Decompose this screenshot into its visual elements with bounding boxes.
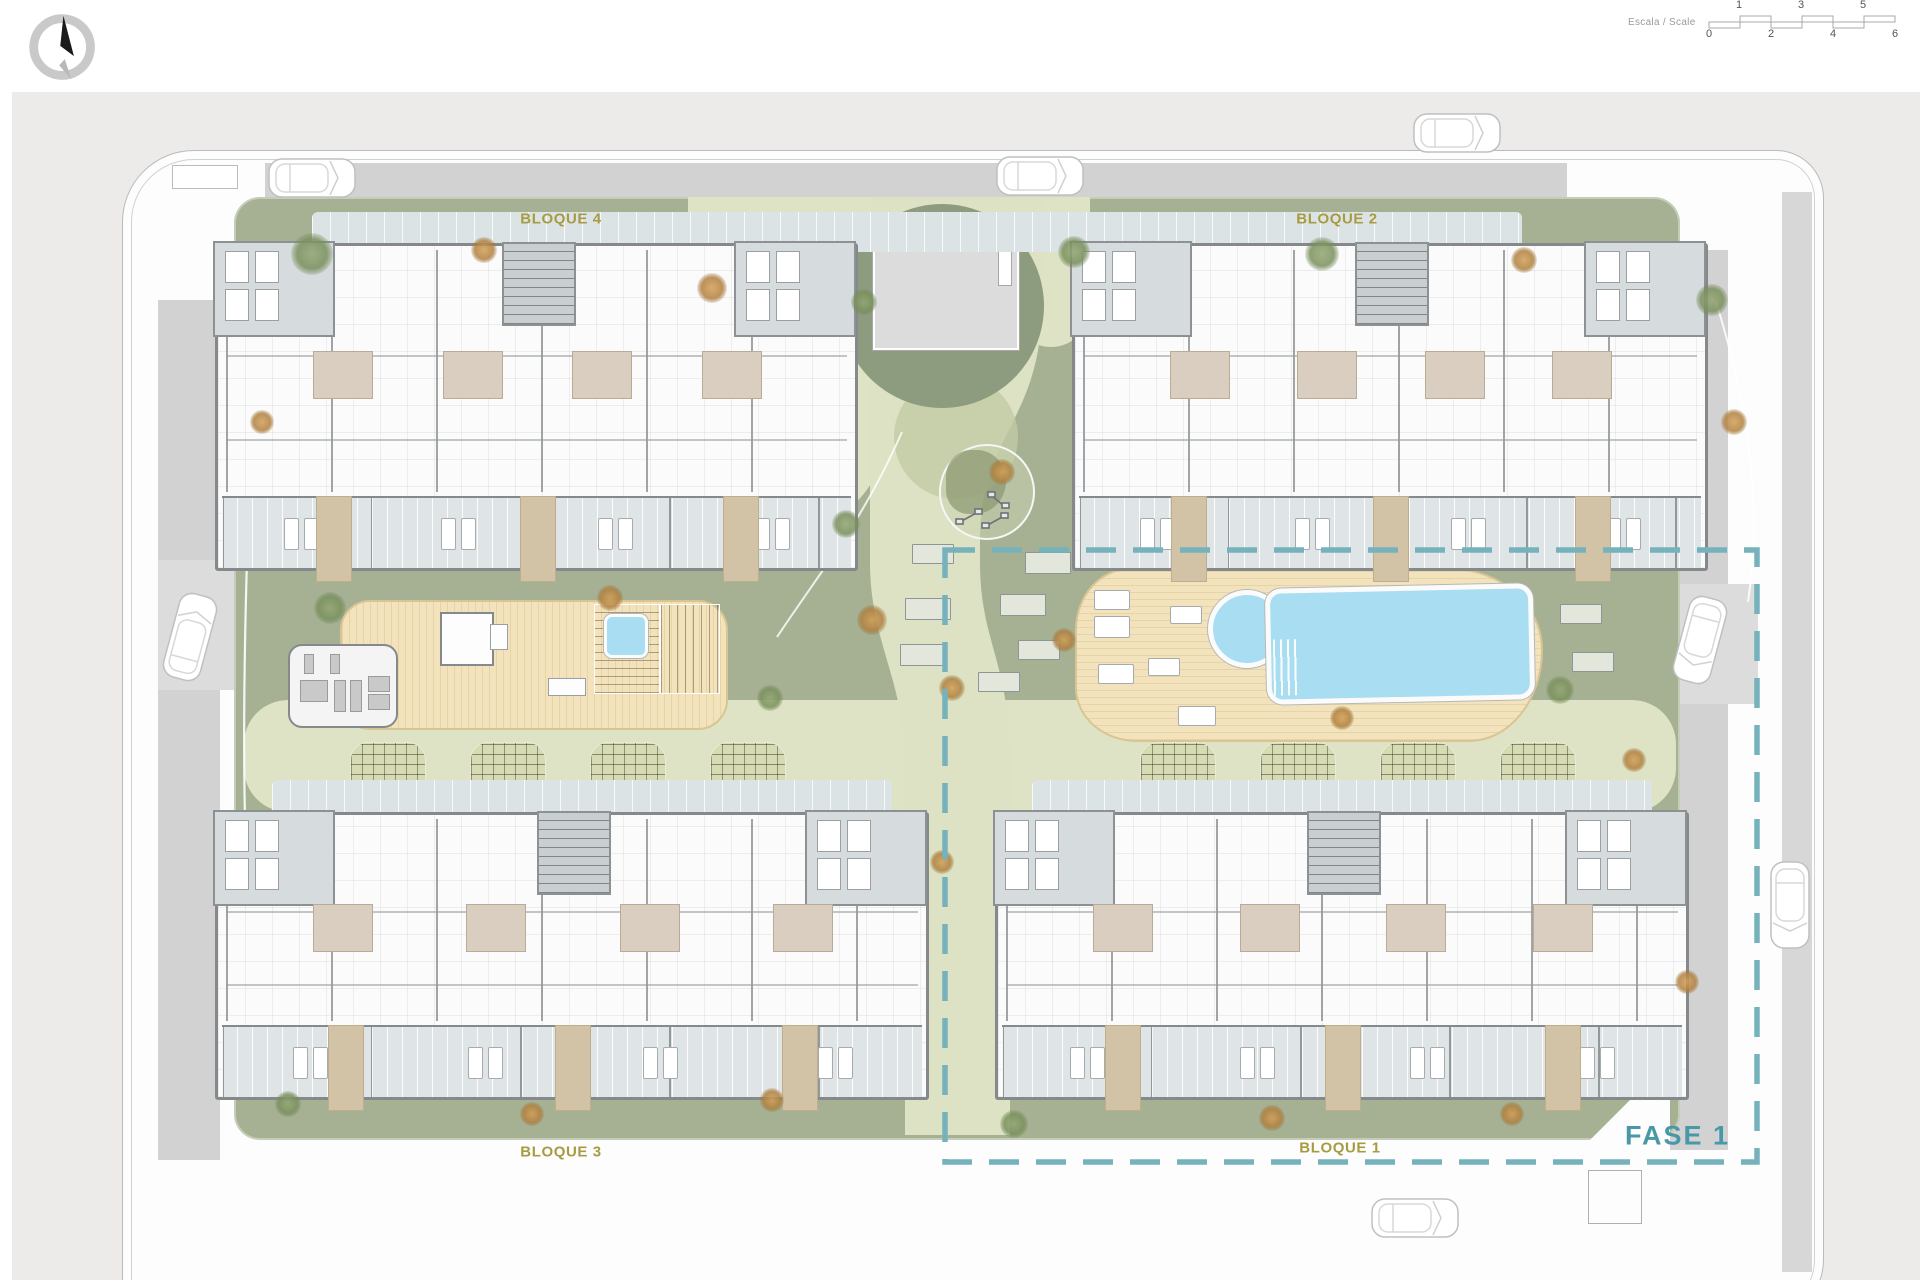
bed-icon [1626,289,1650,321]
building-bloque-2 [1072,243,1708,571]
bathroom-block [313,351,373,399]
sun-lounger [838,1047,853,1079]
plan-canvas: BLOQUE 4 BLOQUE 2 BLOQUE 3 BLOQUE 1 FASE… [12,92,1920,1280]
stair-core [1355,242,1429,326]
bed-icon [817,858,841,890]
lawn-lounger [905,598,951,620]
bed-icon [746,251,770,283]
terrace-walkway [316,496,352,582]
sun-lounger [1170,606,1202,624]
corner-unit [1584,241,1706,337]
bathroom-block [620,904,680,952]
sun-lounger [1098,664,1134,684]
bed-icon [225,820,249,852]
bathroom-block [1240,904,1300,952]
bed-icon [1607,820,1631,852]
sun-lounger [598,518,613,550]
bed-icon [1607,858,1631,890]
pool-steps [1273,639,1300,696]
bathroom-block [773,904,833,952]
bathroom-block [1552,351,1612,399]
scale-number: 3 [1794,0,1808,11]
stair-core [502,242,576,326]
bed-icon [1596,251,1620,283]
sun-lounger [1070,1047,1085,1079]
sun-lounger [1094,590,1130,610]
pavement-square [1588,1170,1642,1224]
bathroom-block [1297,351,1357,399]
bed-icon [1596,289,1620,321]
bed-icon [225,289,249,321]
bathroom-block [1170,351,1230,399]
bathroom-block [466,904,526,952]
sun-lounger [488,1047,503,1079]
bed-icon [817,820,841,852]
sun-lounger [643,1047,658,1079]
lawn-lounger [1025,552,1071,574]
phase-label: FASE 1 [1625,1121,1730,1152]
bed-icon [1035,858,1059,890]
scale-bar: Escala / Scale 1 3 5 0 2 4 6 [1628,2,1920,50]
sun-lounger [663,1047,678,1079]
jacuzzi [604,614,648,658]
stair-core [1307,811,1381,895]
stair-core [537,811,611,895]
sun-lounger [775,518,790,550]
sun-lounger [293,1047,308,1079]
corner-unit [1565,810,1687,906]
sun-lounger [461,518,476,550]
north-arrow-icon [18,4,106,92]
sun-lounger [313,1047,328,1079]
lawn-lounger [912,544,954,564]
sun-lounger [1600,1047,1615,1079]
sun-lounger [468,1047,483,1079]
deck-table [490,624,508,650]
scale-number: 4 [1826,28,1840,40]
sun-lounger [1580,1047,1595,1079]
sun-lounger [818,1047,833,1079]
sun-lounger [1471,518,1486,550]
corner-unit [213,810,335,906]
deck-slat-panel [660,604,720,694]
bed-icon [255,289,279,321]
bed-icon [746,289,770,321]
bed-icon [1082,251,1106,283]
scale-number: 2 [1764,28,1778,40]
block-label-bloque3: BLOQUE 3 [520,1144,601,1161]
site-plan: BLOQUE 4 BLOQUE 2 BLOQUE 3 BLOQUE 1 FASE… [0,0,1920,1280]
bed-icon [1577,820,1601,852]
terrace-walkway [1575,496,1611,582]
road-top [265,163,1567,197]
lawn-lounger [1018,640,1060,660]
sun-lounger [1178,706,1216,726]
sun-lounger [1315,518,1330,550]
sun-lounger [1090,1047,1105,1079]
pavilion [440,612,494,666]
scale-bar-label: Escala / Scale [1628,17,1696,28]
bed-icon [225,858,249,890]
terrace-walkway [1105,1025,1141,1111]
terrace-walkway [723,496,759,582]
lawn-lounger [978,672,1020,692]
sun-lounger [1410,1047,1425,1079]
terrace-walkway [1171,496,1207,582]
block-label-bloque1: BLOQUE 1 [1299,1140,1380,1157]
sun-lounger [1626,518,1641,550]
bathroom-block [443,351,503,399]
sun-lounger [284,518,299,550]
terrace-walkway [1325,1025,1361,1111]
corner-unit [734,241,856,337]
main-pool [1265,583,1535,705]
terrace-walkway [1545,1025,1581,1111]
bed-icon [1112,289,1136,321]
sun-lounger [1260,1047,1275,1079]
lawn-lounger [1560,604,1602,624]
lawn-lounger [1000,594,1046,616]
bed-icon [1005,820,1029,852]
bed-icon [1035,820,1059,852]
bed-icon [1005,858,1029,890]
sun-lounger [618,518,633,550]
block-label-bloque4: BLOQUE 4 [520,211,601,228]
sun-lounger [1240,1047,1255,1079]
bed-icon [1082,289,1106,321]
sun-lounger [1140,518,1155,550]
bed-icon [255,858,279,890]
sun-lounger [441,518,456,550]
bed-icon [255,251,279,283]
bathroom-block [702,351,762,399]
building-bloque-3 [215,812,929,1100]
sun-lounger [1148,658,1180,676]
sheet-header: Escala / Scale 1 3 5 0 2 4 6 [0,0,1920,92]
scale-number: 6 [1888,28,1902,40]
terrace-walkway [1373,496,1409,582]
scale-bar-graphic [1708,14,1904,30]
bed-icon [1112,251,1136,283]
lawn-lounger [1572,652,1614,672]
bed-icon [255,820,279,852]
bed-icon [1577,858,1601,890]
corner-unit [993,810,1115,906]
bathroom-block [1093,904,1153,952]
sun-lounger [1094,616,1130,638]
terrace-walkway [328,1025,364,1111]
building-bloque-1 [995,812,1689,1100]
terrace-walkway [782,1025,818,1111]
bathroom-block [1386,904,1446,952]
scale-number: 0 [1702,28,1716,40]
bathroom-block [572,351,632,399]
corner-unit [213,241,335,337]
terrace-walkway [520,496,556,582]
road-right-outer [1782,192,1812,1272]
sun-lounger [1451,518,1466,550]
gym-room [288,644,398,728]
bed-icon [847,858,871,890]
bed-icon [847,820,871,852]
terrace-walkway [555,1025,591,1111]
block-label-bloque2: BLOQUE 2 [1296,211,1377,228]
bathroom-block [1425,351,1485,399]
corner-unit [1070,241,1192,337]
deck-bench [548,678,586,696]
pavement-square [172,165,238,189]
road-left [158,300,220,1160]
sun-lounger [1430,1047,1445,1079]
bed-icon [1626,251,1650,283]
bathroom-block [313,904,373,952]
bed-icon [776,289,800,321]
bed-icon [776,251,800,283]
scale-number: 1 [1732,0,1746,11]
scale-number: 5 [1856,0,1870,11]
bathroom-block [1533,904,1593,952]
sun-lounger [1295,518,1310,550]
lawn-lounger [900,644,946,666]
building-bloque-4 [215,243,858,571]
bed-icon [225,251,249,283]
corner-unit [805,810,927,906]
